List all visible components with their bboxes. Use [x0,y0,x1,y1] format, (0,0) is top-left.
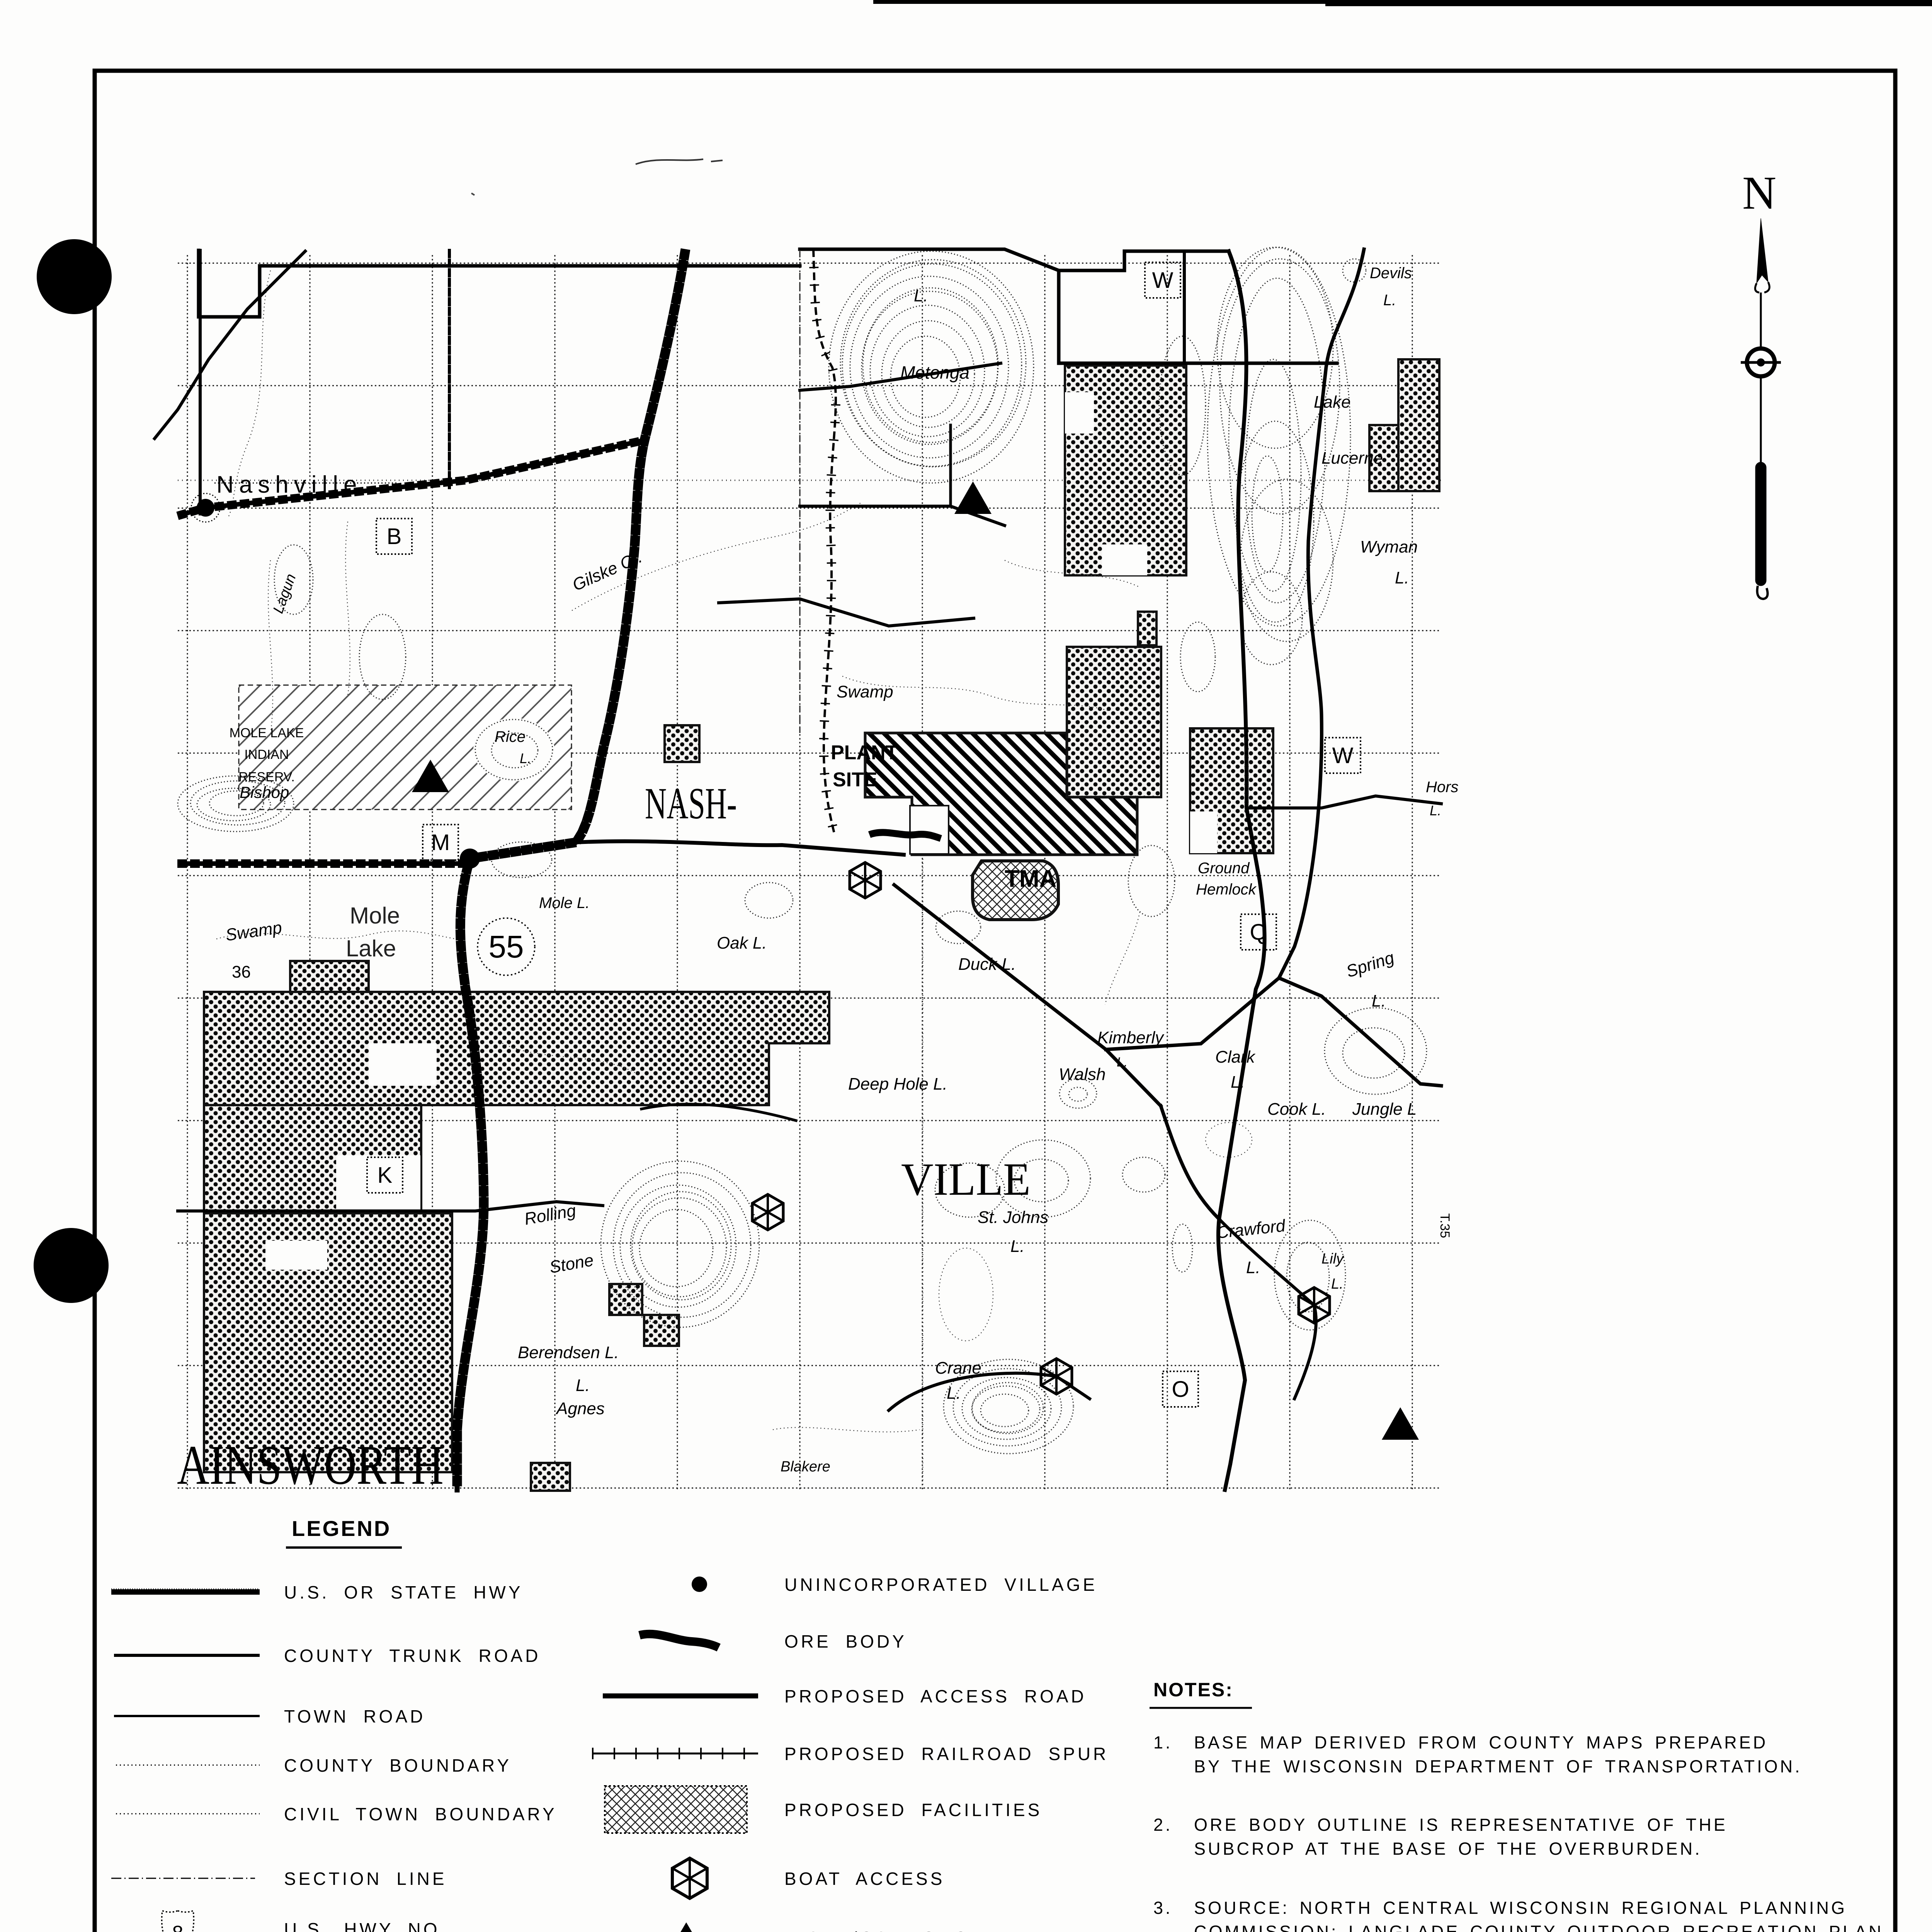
svg-text:Lake: Lake [346,935,396,961]
svg-text:2.: 2. [1153,1815,1173,1835]
svg-text:Duck L.: Duck L. [958,955,1016,974]
svg-text:L.: L. [520,750,531,766]
svg-text:SITE: SITE [833,769,878,791]
svg-text:Ground: Ground [1198,860,1250,877]
svg-text:M: M [431,830,450,855]
svg-text:Lake: Lake [1314,393,1350,412]
svg-text:PROPOSED FACILITIES: PROPOSED FACILITIES [784,1800,1042,1820]
svg-text:Lily: Lily [1321,1251,1344,1267]
svg-text:L.: L. [1117,1055,1128,1070]
svg-text:Mole L.: Mole L. [539,895,590,912]
svg-text:BASE MAP DERIVED FROM COUNTY M: BASE MAP DERIVED FROM COUNTY MAPS PREPAR… [1194,1733,1768,1752]
svg-text:Swamp: Swamp [224,918,283,945]
svg-text:8: 8 [172,1922,184,1932]
svg-text:Spring: Spring [1344,948,1397,981]
svg-text:Crane: Crane [935,1359,981,1378]
svg-text:T.35: T.35 [1437,1213,1452,1238]
svg-text:L.: L. [1395,568,1409,587]
svg-text:Deep Hole L.: Deep Hole L. [848,1075,947,1094]
svg-text:1.: 1. [1153,1733,1173,1752]
svg-text:COMMISSION: LANGLADE COUNTY OU: COMMISSION: LANGLADE COUNTY OUTDOOR RECR… [1194,1922,1884,1932]
svg-text:Metonga: Metonga [900,362,969,383]
svg-text:TOWN ROAD: TOWN ROAD [284,1706,425,1726]
svg-text:K: K [378,1163,393,1188]
svg-text:L.: L. [1430,803,1441,818]
svg-text:RESERV.: RESERV. [238,770,295,784]
svg-text:Devils: Devils [1370,265,1412,282]
svg-text:PARK/CAMPGROUND: PARK/CAMPGROUND [794,1928,1017,1932]
svg-text:VILLE: VILLE [901,1153,1031,1205]
svg-text:Wyman: Wyman [1360,537,1418,556]
svg-text:Rice: Rice [495,728,526,745]
svg-text:Oak L.: Oak L. [717,934,767,952]
svg-text:LEGEND: LEGEND [292,1516,391,1541]
svg-text:U.S. OR STATE HWY: U.S. OR STATE HWY [284,1582,523,1602]
svg-text:Stone: Stone [548,1251,595,1277]
svg-text:Bishop: Bishop [240,783,289,801]
svg-text:Mole: Mole [350,903,400,929]
svg-text:Hemlock: Hemlock [1196,881,1257,898]
svg-text:L.: L. [1331,1276,1344,1292]
svg-text:MOLE LAKE: MOLE LAKE [230,726,304,740]
svg-text:Crawford: Crawford [1216,1216,1287,1242]
svg-text:Hors: Hors [1426,779,1458,796]
svg-text:L.: L. [914,286,928,305]
svg-text:PLANT: PLANT [831,742,898,764]
svg-text:36: 36 [232,963,251,981]
svg-text:Clark: Clark [1215,1048,1256,1066]
svg-text:L.: L. [1246,1258,1260,1277]
svg-text:L.: L. [1010,1237,1025,1256]
svg-text:Walsh: Walsh [1059,1065,1105,1084]
svg-text:O: O [1172,1377,1189,1402]
svg-text:W: W [1332,743,1354,768]
svg-text:Jungle L: Jungle L [1352,1100,1417,1119]
svg-text:Q: Q [1250,920,1267,945]
svg-text:Nashville: Nashville [216,471,362,498]
svg-text:Kimberly: Kimberly [1097,1028,1165,1047]
svg-text:55: 55 [488,929,524,964]
svg-text:Lucerne: Lucerne [1321,449,1383,468]
svg-text:SOURCE: NORTH CENTRAL WISCONSI: SOURCE: NORTH CENTRAL WISCONSIN REGIONAL… [1194,1898,1847,1918]
svg-text:L.: L. [947,1384,961,1403]
svg-text:UNINCORPORATED VILLAGE: UNINCORPORATED VILLAGE [784,1575,1097,1595]
svg-text:Lagun: Lagun [270,571,299,616]
svg-text:COUNTY TRUNK ROAD: COUNTY TRUNK ROAD [284,1646,541,1666]
svg-text:SUBCROP AT THE BASE OF THE OVE: SUBCROP AT THE BASE OF THE OVERBURDEN. [1194,1839,1702,1859]
svg-text:Cook L.: Cook L. [1267,1100,1326,1119]
svg-text:NOTES:: NOTES: [1153,1679,1233,1701]
svg-text:TMA: TMA [1005,866,1056,892]
svg-text:L.: L. [1231,1073,1245,1092]
svg-text:SECTION LINE: SECTION LINE [284,1869,447,1889]
svg-text:B: B [387,524,402,549]
svg-text:INDIAN: INDIAN [244,747,289,762]
svg-text:L.: L. [1383,292,1396,309]
svg-text:CIVIL TOWN BOUNDARY: CIVIL TOWN BOUNDARY [284,1804,557,1824]
svg-text:ORE BODY: ORE BODY [784,1631,907,1651]
svg-text:PROPOSED ACCESS ROAD: PROPOSED ACCESS ROAD [784,1686,1087,1706]
svg-text:BOAT ACCESS: BOAT ACCESS [784,1869,945,1889]
svg-text:Blakere: Blakere [781,1459,830,1475]
svg-text:AINSWORTH: AINSWORTH [177,1434,444,1496]
svg-text:Swamp: Swamp [837,682,893,701]
svg-text:St. Johns: St. Johns [978,1208,1048,1227]
svg-text:N: N [1742,167,1776,219]
svg-text:Berendsen L.: Berendsen L. [518,1343,619,1362]
svg-text:BY THE WISCONSIN DEPARTMENT OF: BY THE WISCONSIN DEPARTMENT OF TRANSPORT… [1194,1757,1802,1776]
svg-text:NASH-: NASH- [645,779,737,828]
svg-text:U.S. HWY NO.: U.S. HWY NO. [284,1919,447,1932]
svg-text:ORE BODY OUTLINE IS REPRESENTA: ORE BODY OUTLINE IS REPRESENTATIVE OF TH… [1194,1815,1728,1835]
svg-text:L.: L. [1372,992,1386,1010]
svg-text:COUNTY BOUNDARY: COUNTY BOUNDARY [284,1755,512,1776]
svg-text:Agnes: Agnes [555,1399,605,1418]
svg-text:PROPOSED RAILROAD SPUR: PROPOSED RAILROAD SPUR [784,1744,1109,1764]
svg-text:W: W [1152,268,1173,293]
svg-text:3.: 3. [1153,1898,1173,1918]
svg-text:L.: L. [576,1376,590,1395]
